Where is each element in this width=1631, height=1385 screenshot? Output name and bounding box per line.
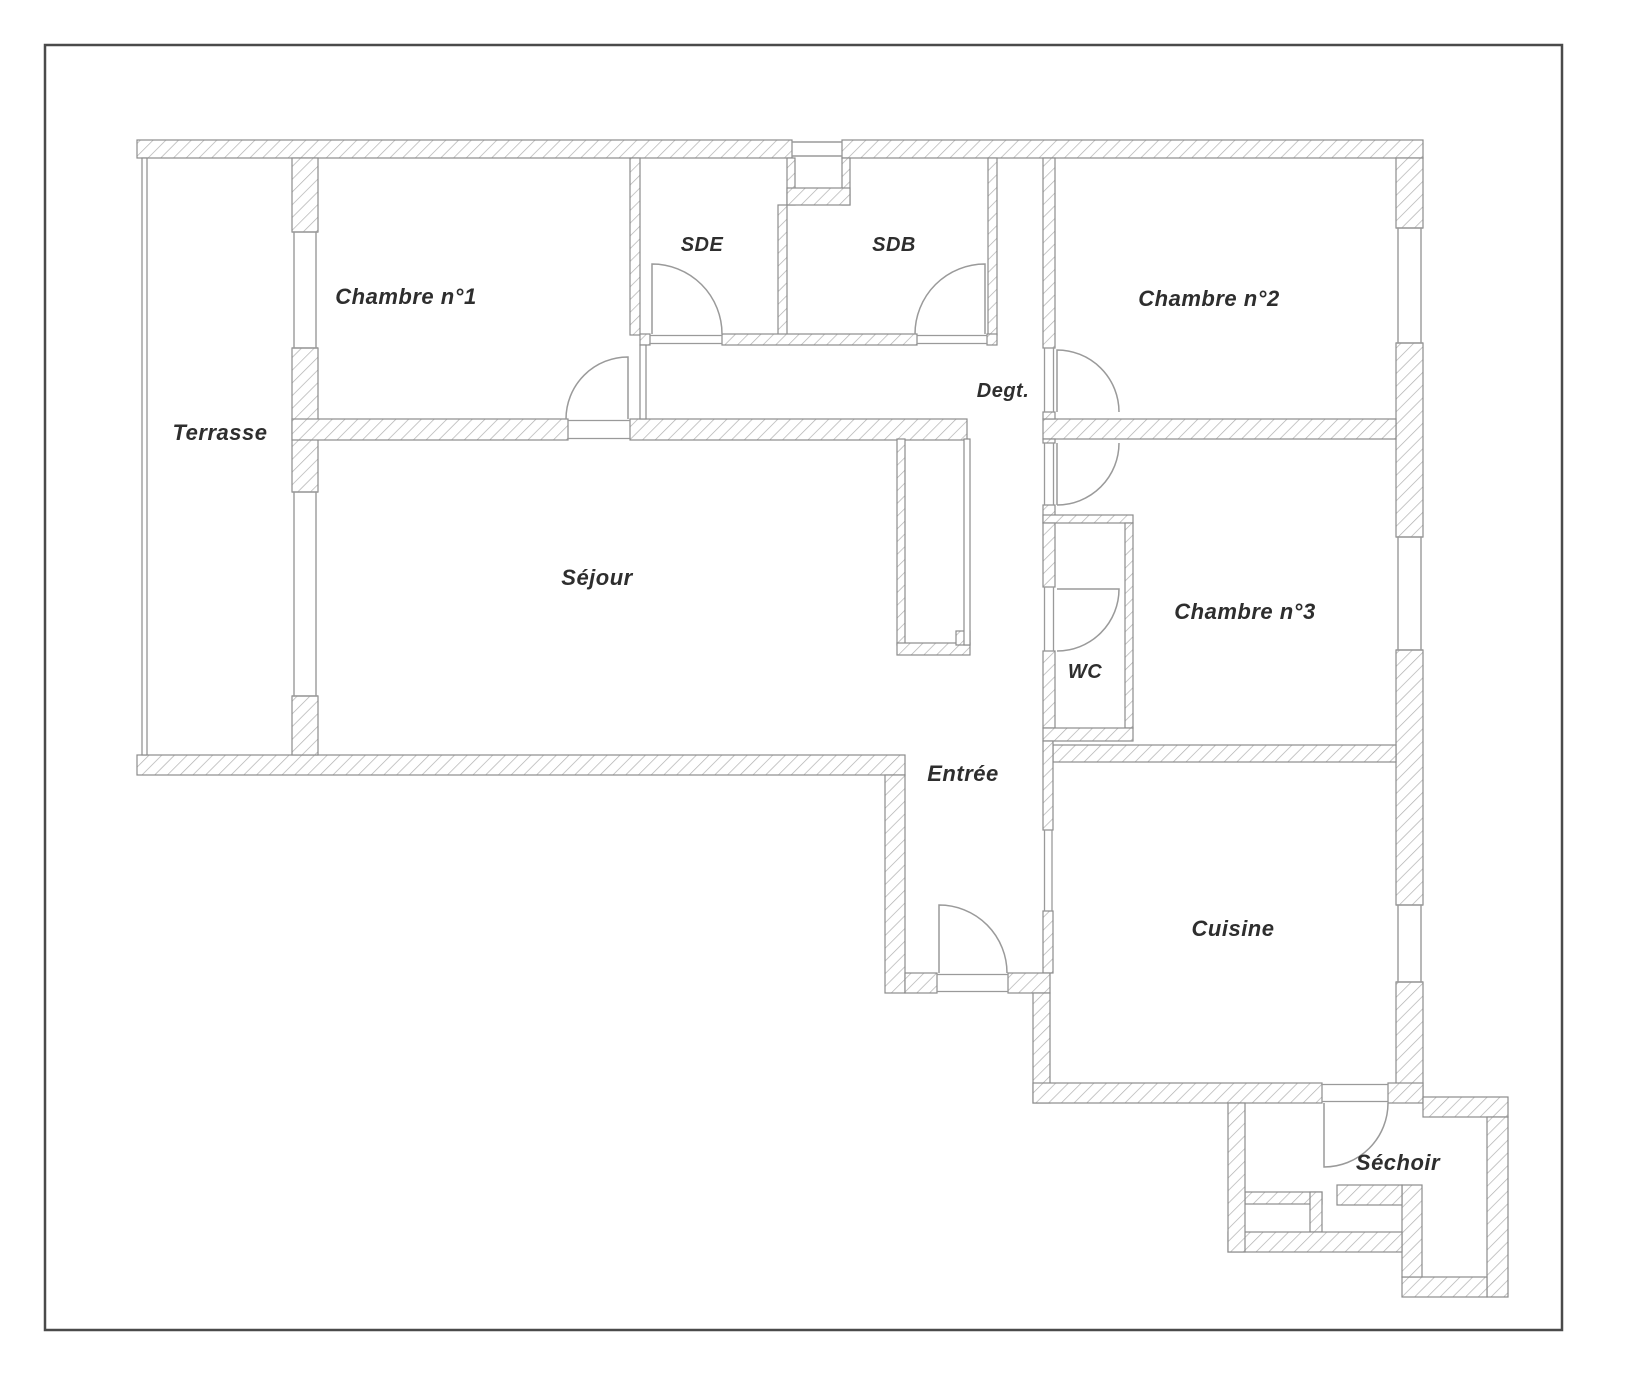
wall (722, 334, 917, 345)
wall (897, 439, 905, 645)
wall (292, 419, 568, 440)
room-label-degt: Degt. (977, 380, 1030, 402)
thin-wall-corridor-end (640, 345, 646, 419)
room-label-sdb: SDB (872, 234, 916, 256)
wall (987, 334, 997, 345)
floor-plan-drawing: Terrasse Chambre n°1 SDE SDB Chambre n°2… (0, 0, 1631, 1385)
wall (1043, 412, 1055, 419)
room-label-chambre2: Chambre n°2 (1138, 286, 1280, 311)
room-label-entree: Entrée (927, 761, 998, 786)
wall (905, 973, 937, 993)
floor-plan-page: Terrasse Chambre n°1 SDE SDB Chambre n°2… (0, 0, 1631, 1385)
wall (1043, 515, 1133, 523)
wall (1053, 745, 1396, 762)
room-label-wc: WC (1068, 661, 1102, 683)
room-label-chambre3: Chambre n°3 (1174, 599, 1315, 624)
wall (1396, 650, 1423, 905)
paper-background (0, 0, 1631, 1385)
wall (1033, 1083, 1322, 1103)
wall (1423, 1097, 1508, 1117)
wall (787, 188, 850, 205)
room-label-sejour: Séjour (561, 565, 633, 590)
wall (1008, 973, 1050, 993)
room-label-sechoir: Séchoir (1356, 1150, 1441, 1175)
thin-wall-terrasse (142, 158, 147, 755)
room-label-cuisine: Cuisine (1192, 916, 1275, 941)
room-label-sde: SDE (681, 234, 724, 256)
wall (1402, 1185, 1422, 1277)
wall (1043, 728, 1133, 741)
wall (1388, 1083, 1423, 1103)
wall (1043, 911, 1053, 973)
wall (640, 334, 650, 345)
wall (988, 158, 997, 335)
wall (1125, 523, 1133, 728)
wall (1337, 1185, 1402, 1205)
wall (137, 140, 792, 158)
room-label-chambre1: Chambre n°1 (335, 284, 476, 309)
wall (137, 755, 905, 775)
room-label-terrasse: Terrasse (173, 420, 268, 445)
wall (1487, 1117, 1508, 1297)
wall (885, 775, 905, 993)
wall (292, 158, 318, 232)
wall (1396, 158, 1423, 228)
wall (1228, 1103, 1245, 1252)
wall (630, 419, 967, 440)
wall (1043, 158, 1055, 348)
wall (1310, 1192, 1322, 1232)
wall (1396, 982, 1423, 1097)
wall (1043, 741, 1053, 830)
wall (1043, 651, 1055, 728)
wall (1396, 343, 1423, 537)
thin-wall-closet (964, 439, 970, 645)
wall (292, 696, 318, 755)
wall (1043, 523, 1055, 587)
wall (1043, 419, 1396, 439)
wall (842, 140, 1423, 158)
wall (1228, 1232, 1402, 1252)
wall (630, 158, 640, 335)
wall (1402, 1277, 1487, 1297)
wall (1043, 439, 1055, 443)
wall (778, 205, 787, 335)
